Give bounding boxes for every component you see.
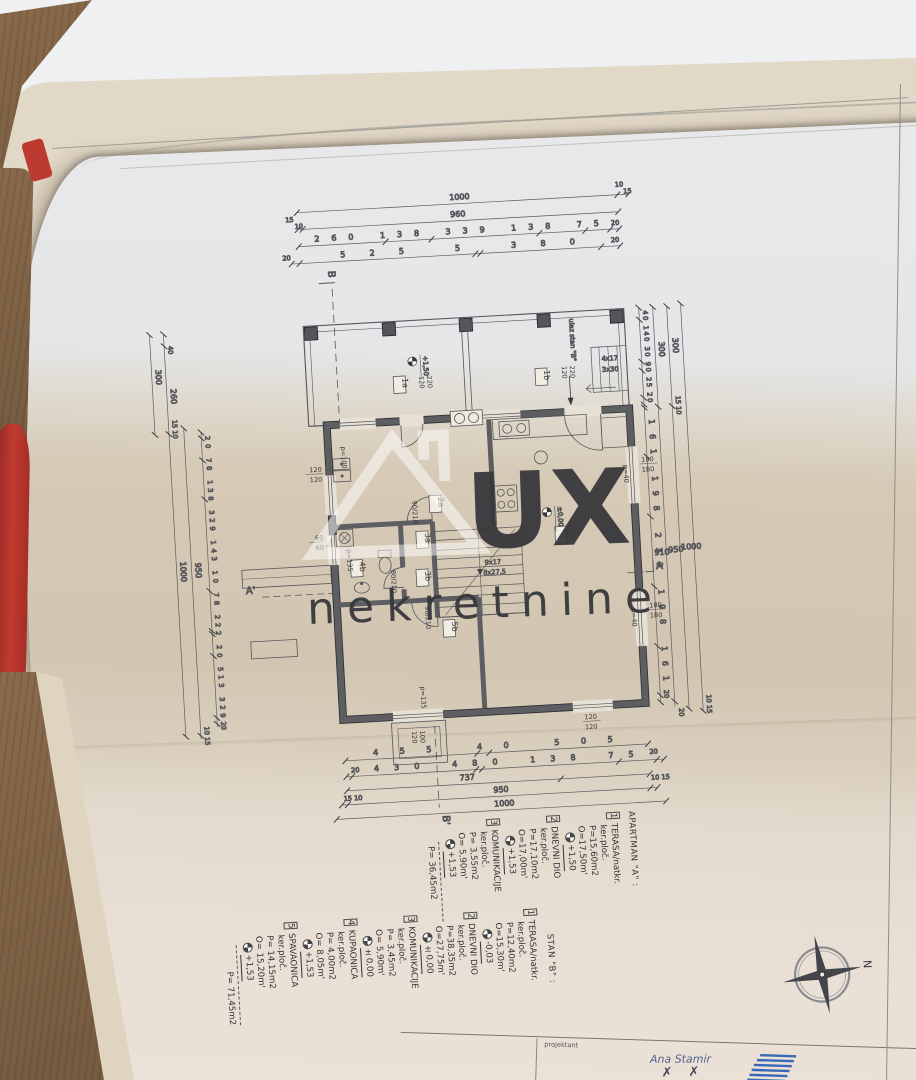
legend-a-item-3: 3KOMUNIKACIJE ker.ploč. P= 3,55m2 O= 5,9…	[443, 818, 503, 921]
watermark-letters: UX	[464, 446, 633, 574]
svg-text:300: 300	[153, 369, 163, 385]
compass-rose: N	[778, 930, 879, 1019]
svg-text:960: 960	[450, 209, 466, 219]
svg-text:4x17: 4x17	[601, 354, 618, 363]
dim-chain-bottom: 455 40 505 430 480 138 75 20 20 737 950 …	[330, 732, 671, 823]
legend-a-total: P= 36,45m2	[423, 822, 440, 922]
svg-text:15: 15	[623, 187, 632, 195]
watermark-name: nekretnine	[306, 572, 658, 635]
legend-b-item-2: 2DNEVNI DIO ker.ploč. P=38,35m2 O=27,75m…	[420, 912, 482, 1033]
svg-text:15 10: 15 10	[343, 794, 362, 803]
svg-text:260: 260	[168, 389, 178, 405]
svg-text:10 15: 10 15	[202, 726, 211, 745]
svg-text:20: 20	[611, 236, 620, 244]
legend-apartman-a: APARTMAN "A" : 1TERASA/natkr. ker.ploč. …	[423, 811, 641, 923]
terrace-stairs: 4x17 3x30	[584, 346, 628, 393]
svg-text:20: 20	[662, 690, 670, 699]
title-block-cell-divider	[535, 1038, 537, 1080]
svg-text:737: 737	[459, 773, 475, 783]
svg-text:20: 20	[351, 766, 360, 774]
legend-b-item-1: 1TERASA/natkr. ker.ploč. P=12,40m2 O=15,…	[480, 908, 542, 1029]
signature-strokes: ✗✗	[661, 1064, 715, 1080]
svg-text:+1,50: +1,50	[421, 356, 430, 377]
svg-text:1000: 1000	[178, 561, 188, 582]
level-symbol	[362, 936, 373, 947]
level-symbol	[302, 939, 313, 950]
svg-text:20: 20	[219, 721, 227, 730]
svg-text:40 140 30 90 25 20: 40 140 30 90 25 20	[641, 310, 654, 402]
legend-b-total: P= 71,45m2	[221, 925, 239, 1043]
svg-text:455 40 505: 455 40 505	[373, 735, 613, 757]
svg-text:1a: 1a	[400, 378, 410, 389]
svg-text:100: 100	[418, 730, 427, 743]
dim-chain-top: 1000 10 15 960 15 10 260 138 339 138 75 …	[279, 180, 635, 268]
level-symbol	[242, 942, 253, 953]
svg-text:15: 15	[285, 216, 294, 224]
level-symbol	[565, 832, 576, 843]
svg-text:3x30: 3x30	[602, 365, 619, 374]
svg-text:B: B	[325, 271, 336, 279]
svg-text:950: 950	[193, 563, 203, 579]
svg-text:120: 120	[410, 731, 419, 744]
projektant-label: projektant	[544, 1040, 578, 1049]
level-symbol	[505, 835, 516, 846]
legend-a-title: APARTMAN "A" :	[625, 811, 642, 911]
level-symbol	[445, 839, 456, 850]
legend-a-item-1: 1TERASA/natkr. ker.ploč. P=15,60m2 O=17,…	[563, 812, 623, 915]
svg-text:430 480 138 75: 430 480 138 75	[374, 750, 634, 773]
svg-text:20: 20	[677, 708, 685, 717]
svg-text:260 138 339 138 75: 260 138 339 138 75	[314, 219, 599, 244]
svg-text:40: 40	[166, 346, 174, 355]
svg-text:20: 20	[611, 219, 620, 227]
legend-b-title: STAN "B" :	[542, 907, 560, 1025]
svg-text:120: 120	[560, 366, 569, 379]
level-symbol	[482, 929, 493, 940]
svg-text:10 15: 10 15	[704, 694, 713, 713]
watermark-dux: UX nekretnine	[294, 390, 658, 642]
photo-of-floor-plan: 1000 10 15 960 15 10 260 138 339 138 75 …	[0, 0, 916, 1080]
svg-text:20: 20	[282, 254, 291, 262]
svg-text:1000: 1000	[681, 542, 702, 552]
svg-text:10 15: 10 15	[651, 773, 670, 782]
compass-north-label: N	[860, 960, 873, 969]
svg-text:10: 10	[294, 222, 303, 230]
svg-text:20 78 138 329 143 10 78: 20 78 138 329 143 10 78 222 20 513 329	[203, 436, 227, 718]
svg-text:220: 220	[425, 375, 434, 388]
svg-text:120: 120	[585, 723, 598, 732]
legend-b-item-3: 3KOMUNIKACIJE ker.ploč. P= 3,45m2 O= 5,9…	[360, 915, 422, 1036]
svg-text:220: 220	[568, 365, 577, 378]
svg-text:1000: 1000	[449, 192, 470, 202]
svg-text:20: 20	[649, 747, 658, 755]
svg-text:950: 950	[493, 785, 509, 795]
svg-text:A': A'	[246, 586, 256, 598]
svg-text:A: A	[656, 561, 664, 572]
level-symbol	[422, 932, 433, 943]
legend-stan-b: STAN "B" : 1TERASA/natkr. ker.ploč. P=12…	[221, 907, 560, 1043]
legend-a-item-2: 2DNEVNI DIO ker.ploč. P=17,10m2 O=17,00m…	[503, 815, 563, 918]
svg-text:p=135: p=135	[418, 686, 427, 709]
watermark-house-icon	[309, 436, 479, 554]
svg-text:15 10: 15 10	[170, 420, 179, 439]
svg-text:525 5 380: 525 5 380	[340, 237, 575, 259]
svg-text:300: 300	[657, 341, 667, 357]
legend-b-item-5: 5SPAVAONICA ker.ploč. P= 14,15m2 O= 15,2…	[240, 922, 302, 1043]
company-logo	[745, 1051, 806, 1080]
svg-text:1b: 1b	[542, 370, 552, 381]
svg-text:1000: 1000	[494, 798, 515, 808]
entrance-b-label: ulaz stan "B"	[567, 318, 577, 361]
svg-text:300: 300	[670, 338, 680, 354]
svg-text:120: 120	[584, 713, 597, 722]
dim-chain-left: 300 40 260 15 10 1000 950 10 15 20 78 13…	[146, 329, 228, 748]
svg-text:15 10: 15 10	[674, 395, 683, 414]
legend-b-item-4: 4KUPAONICA ker.ploč. P= 4,00m2 O= 8,05m'…	[300, 919, 362, 1040]
